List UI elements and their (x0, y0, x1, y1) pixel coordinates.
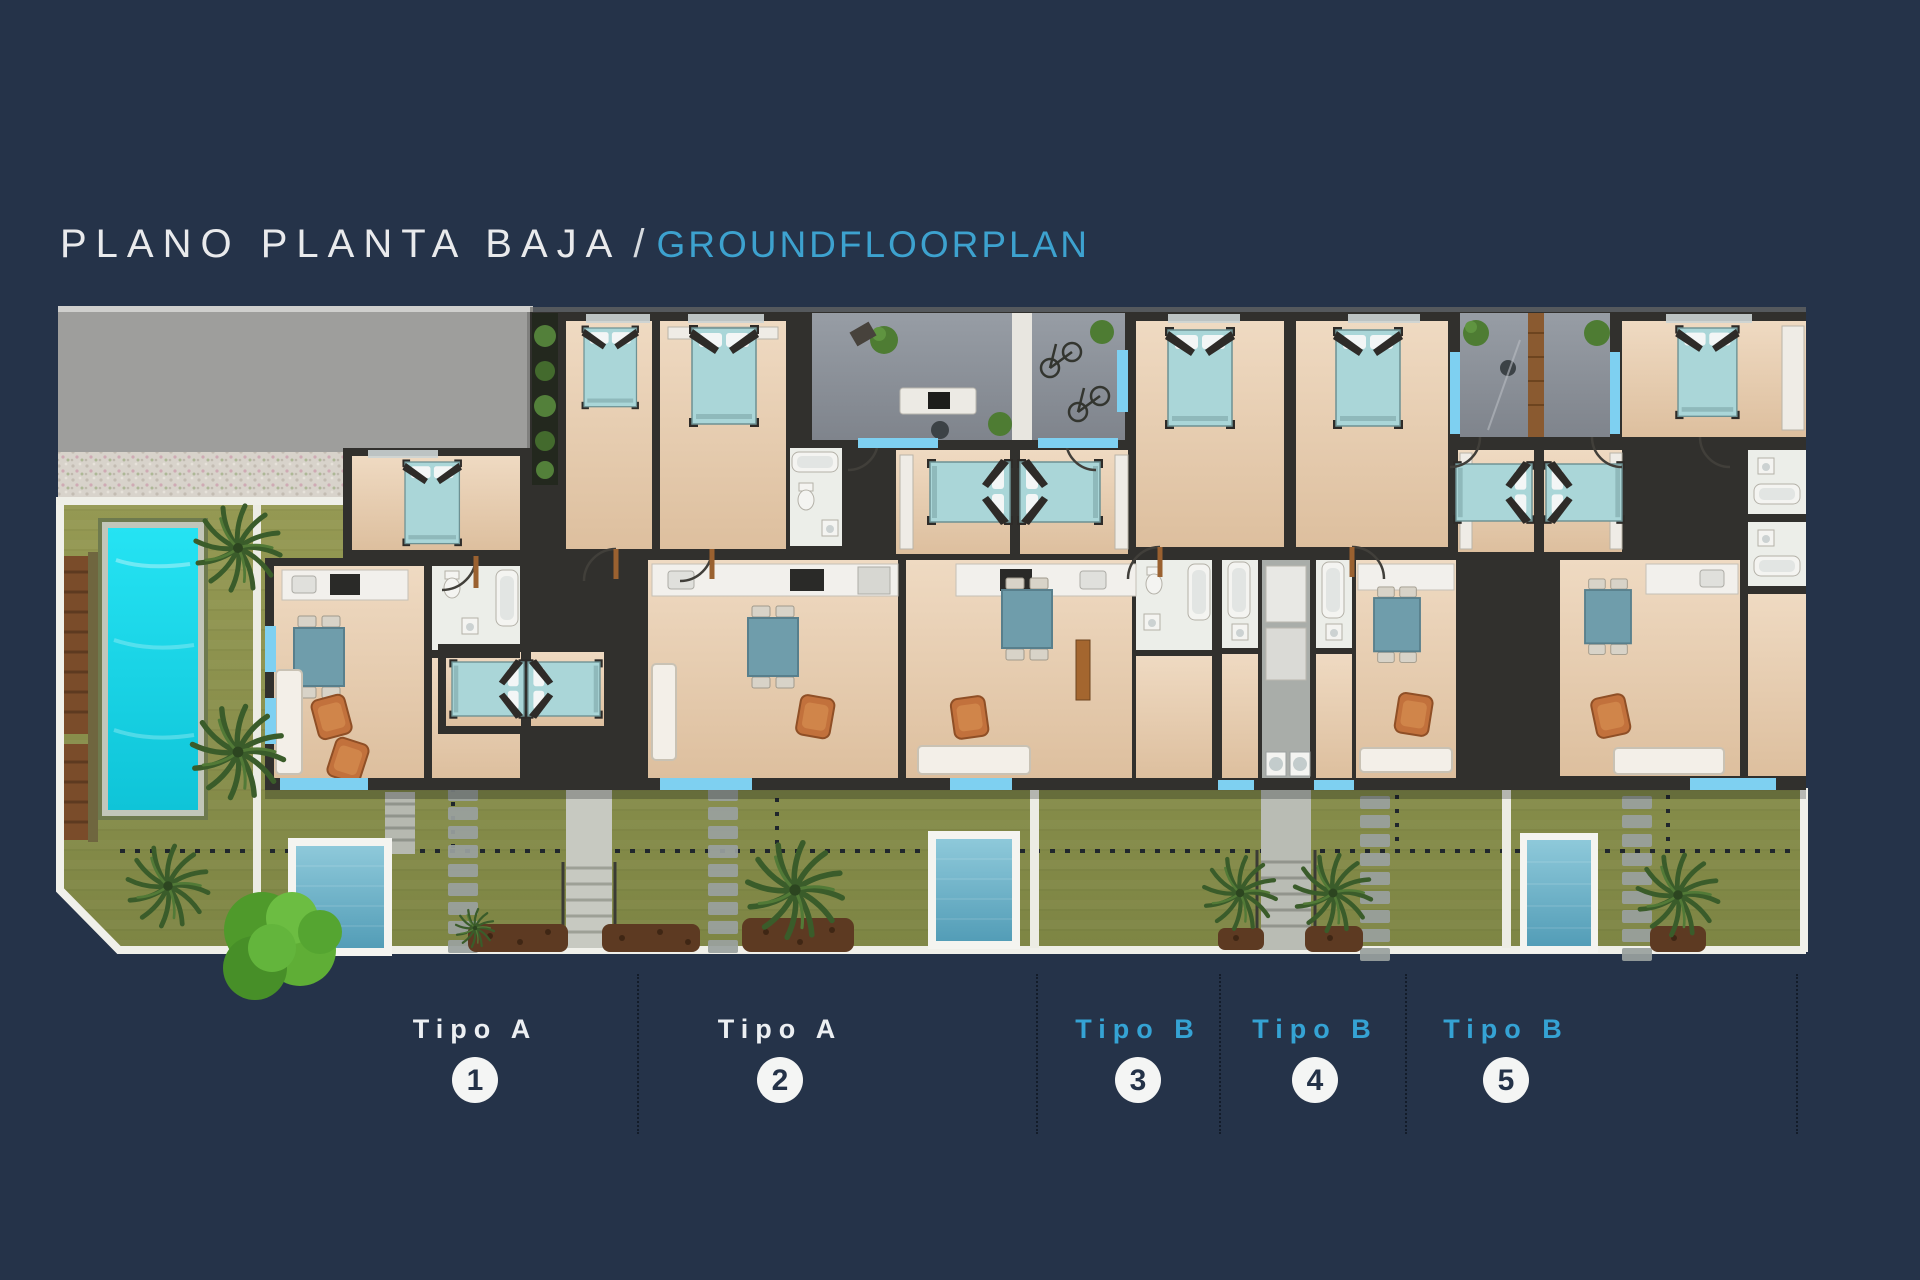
unit-separator-line (1796, 974, 1798, 1134)
plunge-pool-unit-3 (928, 831, 1020, 949)
stepping-stones (708, 788, 738, 953)
unit-separator-line (1405, 974, 1407, 1134)
unit-type-label: Tipo B (1252, 1014, 1378, 1045)
unit-label-2: Tipo A 2 (660, 1014, 900, 1103)
unit-number-badge: 5 (1483, 1057, 1529, 1103)
unit-number-badge: 3 (1115, 1057, 1161, 1103)
plunge-pool-unit-5 (1520, 833, 1598, 953)
unit-separator-line (1219, 974, 1221, 1134)
unit-label-5: Tipo B 5 (1386, 1014, 1626, 1103)
gravel-path (58, 452, 345, 498)
unit-separator-line (1036, 974, 1038, 1134)
title-secondary: GROUNDFLOORPLAN (656, 224, 1090, 265)
unit-separator-line (637, 974, 639, 1134)
unit-type-label: Tipo B (1443, 1014, 1569, 1045)
unit-type-label: Tipo A (413, 1014, 538, 1045)
title-separator: / (633, 222, 644, 266)
unit-label-1: Tipo A 1 (355, 1014, 595, 1103)
unit-number-badge: 2 (757, 1057, 803, 1103)
access-road (58, 312, 533, 452)
page-title: PLANO PLANTA BAJA/GROUNDFLOORPLAN (60, 222, 1090, 267)
road-curb (58, 306, 533, 312)
building-shadow (265, 790, 1806, 799)
lawn-divider (1030, 790, 1039, 948)
stepping-stones (1622, 796, 1652, 961)
unit-number-badge: 4 (1292, 1057, 1338, 1103)
lawn-divider (1502, 790, 1511, 948)
unit-type-label: Tipo B (1075, 1014, 1201, 1045)
title-primary: PLANO PLANTA BAJA (60, 222, 621, 266)
sun-loungers (64, 552, 98, 842)
floor-plan-rendering (0, 0, 1920, 1280)
unit-type-label: Tipo A (718, 1014, 843, 1045)
lap-pool (98, 518, 208, 820)
unit-number-badge: 1 (452, 1057, 498, 1103)
walkway-stairs-1-2 (563, 790, 615, 948)
shared-patio (812, 313, 1012, 440)
